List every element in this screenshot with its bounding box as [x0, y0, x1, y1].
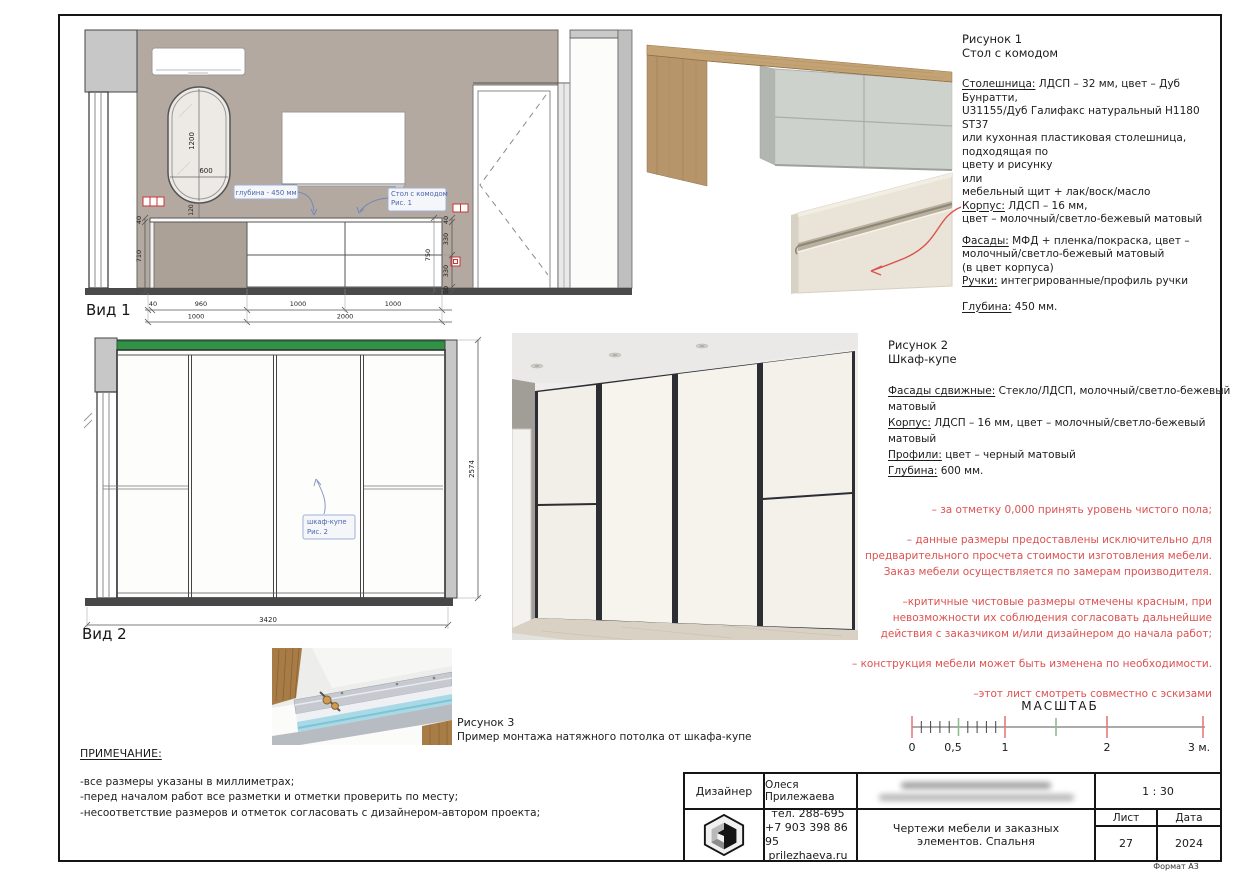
svg-text:710: 710 — [135, 250, 143, 262]
ceiling-mount-photo — [272, 648, 452, 745]
dim-wardrobe-width: 3420 — [259, 616, 277, 624]
spec-line: U31155/Дуб Галифакс натуральный H1180 ST… — [962, 105, 1224, 132]
svg-text:40: 40 — [149, 300, 157, 308]
spec-line: Ручки: интегрированные/профиль ручки — [962, 275, 1224, 289]
view2-elevation: шкаф-купе Рис. 2 2574 3420 — [80, 333, 500, 653]
red-notes: – за отметку 0,000 принять уровень чисто… — [850, 502, 1212, 716]
spec-line: Глубина: 450 мм. — [962, 301, 1224, 315]
svg-text:1000: 1000 — [290, 300, 307, 308]
ac-unit — [152, 48, 245, 75]
wardrobe-photo — [512, 333, 858, 640]
studio-logo-icon — [701, 813, 747, 857]
spec-line: мебельный щит + лак/воск/масло — [962, 186, 1224, 200]
svg-text:Стол с комодом: Стол с комодом — [391, 190, 448, 198]
red-note: – данные размеры предоставлены исключите… — [850, 532, 1212, 580]
note-item: -несоответствие размеров и отметок согла… — [80, 806, 560, 822]
svg-text:Рис. 1: Рис. 1 — [391, 199, 412, 207]
svg-text:2: 2 — [1104, 741, 1111, 754]
desk-dresser — [150, 218, 442, 288]
green-ceiling-profile — [117, 341, 445, 350]
notes-title: ПРИМЕЧАНИЕ: — [80, 746, 560, 762]
spec-line: Фасады: МФД + пленка/покраска, цвет – — [962, 235, 1224, 249]
spec-line: цвету и рисунку — [962, 159, 1224, 173]
spec-line: Столешница: ЛДСП – 32 мм, цвет – Дуб Бун… — [962, 78, 1224, 105]
svg-text:0,5: 0,5 — [944, 741, 962, 754]
website: prilezhaeva.ru — [769, 849, 848, 863]
format-label: Формат А3 — [1130, 862, 1222, 871]
dim-mirror-gap: 120 — [188, 204, 195, 216]
note-item: -все размеры указаны в миллиметрах; — [80, 775, 560, 791]
spec-line: Корпус: ЛДСП – 16 мм, — [962, 200, 1224, 214]
svg-text:50: 50 — [442, 286, 450, 294]
tv — [282, 112, 405, 189]
floor — [85, 598, 453, 606]
phone1: тел. 288-695 — [771, 807, 844, 821]
column — [85, 30, 137, 92]
phone2: +7 903 398 86 95 — [765, 821, 851, 849]
svg-text:1: 1 — [1002, 741, 1009, 754]
red-note: – за отметку 0,000 принять уровень чисто… — [850, 502, 1212, 518]
spec-line: Фасады сдвижные: Стекло/ЛДСП, молочный/с… — [888, 383, 1240, 415]
figure2-spec: Рисунок 2 Шкаф-купе Фасады сдвижные: Сте… — [888, 338, 1240, 479]
sheet-number-cell: 27 — [1096, 827, 1158, 860]
red-note: –критичные чистовые размеры отмечены кра… — [850, 594, 1212, 642]
svg-text:0: 0 — [909, 741, 916, 754]
figure3-title: Рисунок 3 — [457, 716, 752, 730]
notes-block: ПРИМЕЧАНИЕ: -все размеры указаны в милли… — [80, 746, 560, 821]
svg-text:шкаф-купе: шкаф-купе — [307, 518, 347, 526]
svg-text:2000: 2000 — [337, 313, 354, 321]
figure1-spec: Рисунок 1 Стол с комодом Столешница: ЛДС… — [962, 32, 1224, 314]
date-value-cell: 2024 — [1158, 827, 1220, 860]
figure2-title: Рисунок 2 — [888, 338, 1240, 352]
svg-text:750: 750 — [424, 249, 432, 261]
dim-mirror-height: 1200 — [188, 132, 196, 150]
right-pilaster — [445, 340, 457, 598]
scale-bar: МАСШТАБ 0 0,5 1 2 3 м. — [893, 695, 1223, 757]
svg-text:3 м.: 3 м. — [1188, 741, 1210, 754]
spec-line: молочный/светло-бежевый матовый — [962, 248, 1224, 262]
sliding-doors — [535, 351, 855, 630]
svg-text:глубина - 450 мм: глубина - 450 мм — [235, 189, 296, 197]
scale-title: МАСШТАБ — [1021, 699, 1099, 713]
right-wall-panel — [570, 30, 632, 288]
spec-line: или кухонная пластиковая столешница, под… — [962, 132, 1224, 159]
dim-mirror-width: 600 — [199, 167, 212, 175]
room-door — [512, 429, 531, 640]
spec-line: Глубина: 600 мм. — [888, 463, 1240, 479]
role-cell: Дизайнер — [685, 774, 765, 810]
logo-cell — [685, 810, 765, 860]
view1-elevation: 1200 600 120 — [80, 25, 636, 325]
figure3-caption: Пример монтажа натяжного потолка от шкаф… — [457, 730, 752, 744]
window — [84, 392, 117, 598]
spec-line: или — [962, 173, 1224, 187]
figure2-subtitle: Шкаф-купе — [888, 352, 1240, 366]
svg-text:Рис. 2: Рис. 2 — [307, 528, 328, 536]
svg-text:960: 960 — [195, 300, 207, 308]
window — [89, 92, 108, 288]
wardrobe-body — [103, 350, 445, 598]
front-panel — [798, 173, 952, 293]
dresser — [760, 66, 952, 170]
spec-line: Корпус: ЛДСП – 16 мм, цвет – молочный/св… — [888, 415, 1240, 447]
designer-cell: Олеся Прилежаева — [765, 774, 858, 810]
figure3-caption-block: Рисунок 3 Пример монтажа натяжного потол… — [457, 716, 752, 744]
view1-label: Вид 1 — [86, 301, 131, 319]
svg-text:1000: 1000 — [188, 313, 205, 321]
red-note: – конструкция мебели может быть изменена… — [850, 656, 1212, 672]
dim-wardrobe-height: 2574 — [468, 460, 476, 478]
spec-line: (в цвет корпуса) — [962, 262, 1224, 276]
title-block: Дизайнер Олеся Прилежаева 1 : 30 тел. 28… — [683, 772, 1220, 860]
svg-text:40: 40 — [135, 216, 143, 224]
figure1-title: Рисунок 1 — [962, 32, 1224, 46]
figure1-subtitle: Стол с комодом — [962, 46, 1224, 60]
project-cell-blurred — [858, 774, 1096, 810]
contacts-cell: тел. 288-695 +7 903 398 86 95 prilezhaev… — [765, 810, 858, 860]
view2-label: Вид 2 — [82, 625, 127, 643]
column — [95, 338, 117, 392]
drawing-sheet: 1200 600 120 — [0, 0, 1240, 877]
svg-text:1000: 1000 — [385, 300, 402, 308]
spec-line: Профили: цвет – черный матовый — [888, 447, 1240, 463]
svg-text:330: 330 — [442, 233, 450, 245]
floor — [85, 288, 632, 295]
scale-labels: 0 0,5 1 2 3 м. — [909, 741, 1211, 754]
doc-title-cell: Чертежи мебели и заказных элементов. Спа… — [858, 810, 1096, 860]
handle-detail-render — [783, 168, 963, 304]
svg-text:330: 330 — [442, 265, 450, 277]
date-label-cell: Дата — [1158, 810, 1220, 827]
note-item: -перед началом работ все разметки и отме… — [80, 790, 560, 806]
svg-text:40: 40 — [442, 216, 450, 224]
spec-line: цвет – молочный/светло-бежевый матовый — [962, 213, 1224, 227]
scale-cell: 1 : 30 — [1096, 774, 1220, 810]
sheet-label-cell: Лист — [1096, 810, 1158, 827]
wood-leg — [647, 45, 707, 186]
door — [473, 83, 570, 288]
